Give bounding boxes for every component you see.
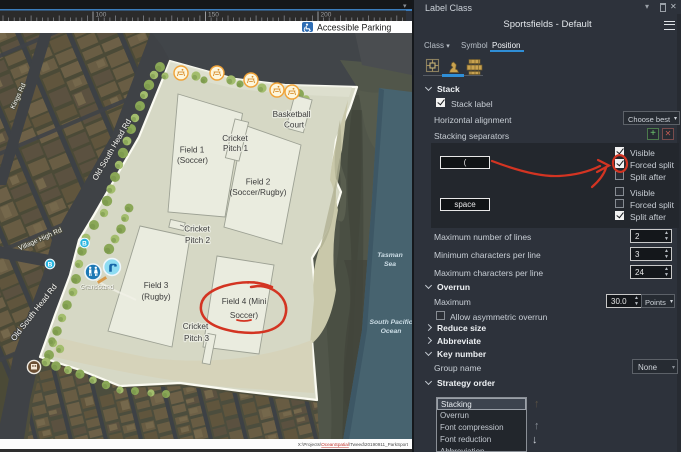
svg-text:B: B <box>48 261 53 268</box>
svg-text:Field 1: Field 1 <box>180 146 205 155</box>
svg-text:Sea: Sea <box>384 261 396 268</box>
svg-text:Grandstand: Grandstand <box>80 284 114 291</box>
svg-text:Basketball: Basketball <box>273 110 311 119</box>
svg-text:Pitch 1: Pitch 1 <box>223 144 248 153</box>
svg-text:Ocean: Ocean <box>381 328 402 335</box>
svg-text:(Rugby): (Rugby) <box>141 293 170 302</box>
svg-text:Cricket: Cricket <box>183 322 209 331</box>
svg-text:Field 2: Field 2 <box>246 178 271 187</box>
svg-text:B: B <box>82 240 87 247</box>
svg-text:(Soccer/Rugby): (Soccer/Rugby) <box>230 188 287 197</box>
svg-text:Field 3: Field 3 <box>144 281 169 290</box>
svg-text:Pitch 2: Pitch 2 <box>185 236 210 245</box>
svg-text:South Pacific: South Pacific <box>369 319 412 326</box>
svg-text:Soccer): Soccer) <box>230 311 258 320</box>
svg-text:Pitch 3: Pitch 3 <box>184 334 209 343</box>
svg-text:Court: Court <box>284 121 305 130</box>
svg-text:X:\Projects\OceanSpatial\Tweed: X:\Projects\OceanSpatial\Tweed\20190911_… <box>298 442 409 447</box>
svg-text:Tasman: Tasman <box>377 252 402 259</box>
svg-text:Cricket: Cricket <box>222 134 248 143</box>
svg-text:(Soccer): (Soccer) <box>177 156 208 165</box>
svg-text:Field 4 (Mini: Field 4 (Mini <box>222 297 267 306</box>
svg-text:Cricket: Cricket <box>184 225 210 234</box>
